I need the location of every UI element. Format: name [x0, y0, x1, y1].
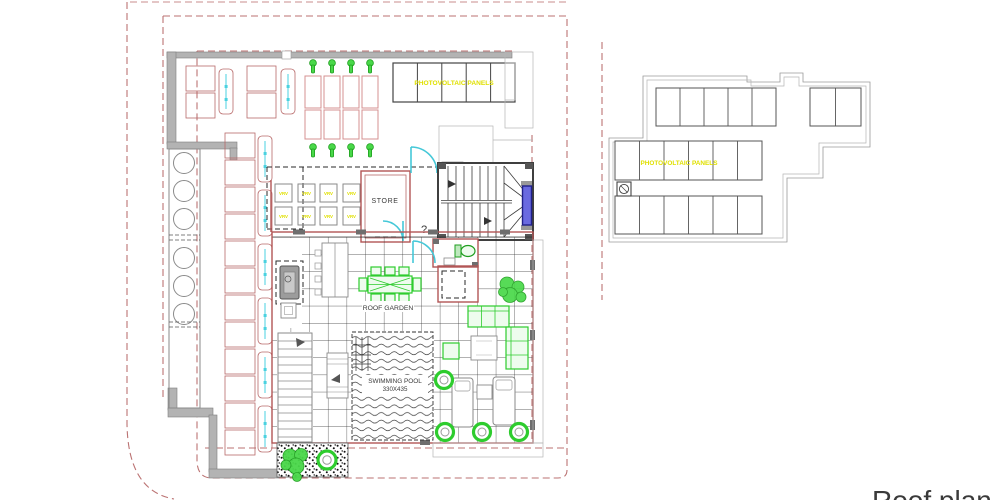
- pool-ladder: [353, 337, 371, 371]
- lift-shaft: [523, 186, 532, 225]
- bed-ring-planter: [318, 451, 336, 469]
- pv-array-top: [656, 88, 776, 126]
- swimming-pool: SWIMMING POOL 330X435: [352, 332, 433, 440]
- question-mark: ?: [421, 224, 427, 236]
- cad-roof-plan-sheet: PHOTOVOLTAIC PANELS VRV VRV VRV VRV VRV …: [0, 0, 1000, 500]
- vrv-units: VRV VRV VRV VRV VRV VRV VRV VRV: [267, 167, 437, 232]
- left-plan: PHOTOVOLTAIC PANELS VRV VRV VRV VRV VRV …: [167, 51, 543, 482]
- pv-array-middle: PHOTOVOLTAIC PANELS: [615, 141, 762, 180]
- sheet-title: Roof plan: [872, 485, 992, 500]
- vrv-label: VRV: [279, 214, 288, 219]
- store-label: STORE: [372, 198, 399, 205]
- pv-label-right: PHOTOVOLTAIC PANELS: [641, 160, 719, 167]
- vrv-label: VRV: [324, 214, 333, 219]
- vrv-label: VRV: [302, 214, 311, 219]
- pv-label-left: PHOTOVOLTAIC PANELS: [414, 80, 494, 87]
- pv-array-top-right: [810, 88, 861, 126]
- pv-array-left: PHOTOVOLTAIC PANELS: [393, 63, 515, 102]
- right-plan: PHOTOVOLTAIC PANELS: [609, 73, 870, 242]
- pool-dimензion: 330X435: [383, 386, 408, 393]
- roof-plan-canvas: PHOTOVOLTAIC PANELS VRV VRV VRV VRV VRV …: [0, 0, 1000, 500]
- planting-bed: [277, 443, 348, 482]
- skylight-shaft: [327, 353, 348, 398]
- pergola-grid: [305, 60, 378, 157]
- sunbed-column: [225, 133, 272, 455]
- pool-label: SWIMMING POOL: [368, 378, 422, 385]
- vrv-label: VRV: [347, 214, 356, 219]
- vrv-label: VRV: [279, 191, 288, 196]
- pv-array-bottom: [615, 196, 762, 234]
- svg-text:ROOF GARDEN: ROOF GARDEN: [363, 305, 414, 312]
- planter-strip: [169, 149, 200, 408]
- vrv-squares: VRV VRV VRV VRV VRV VRV VRV VRV: [275, 184, 360, 225]
- stair-core: [438, 163, 533, 240]
- roof-garden-label: ROOF GARDEN: [362, 301, 414, 312]
- door-arc-top: [411, 147, 437, 173]
- roof-fan-unit: [617, 182, 631, 196]
- garden-stair: [278, 333, 312, 442]
- vrv-label: VRV: [347, 191, 356, 196]
- sunbed-group: [186, 66, 233, 118]
- sunbed-group: [247, 66, 295, 118]
- vrv-label: VRV: [302, 191, 311, 196]
- roof-garden-terrace: ROOF GARDEN SWIMMING POOL 330X435: [272, 230, 543, 458]
- toilet: [455, 245, 475, 257]
- wc-sink: [444, 258, 455, 265]
- pergola-cells: [305, 76, 378, 139]
- vrv-label: VRV: [324, 191, 333, 196]
